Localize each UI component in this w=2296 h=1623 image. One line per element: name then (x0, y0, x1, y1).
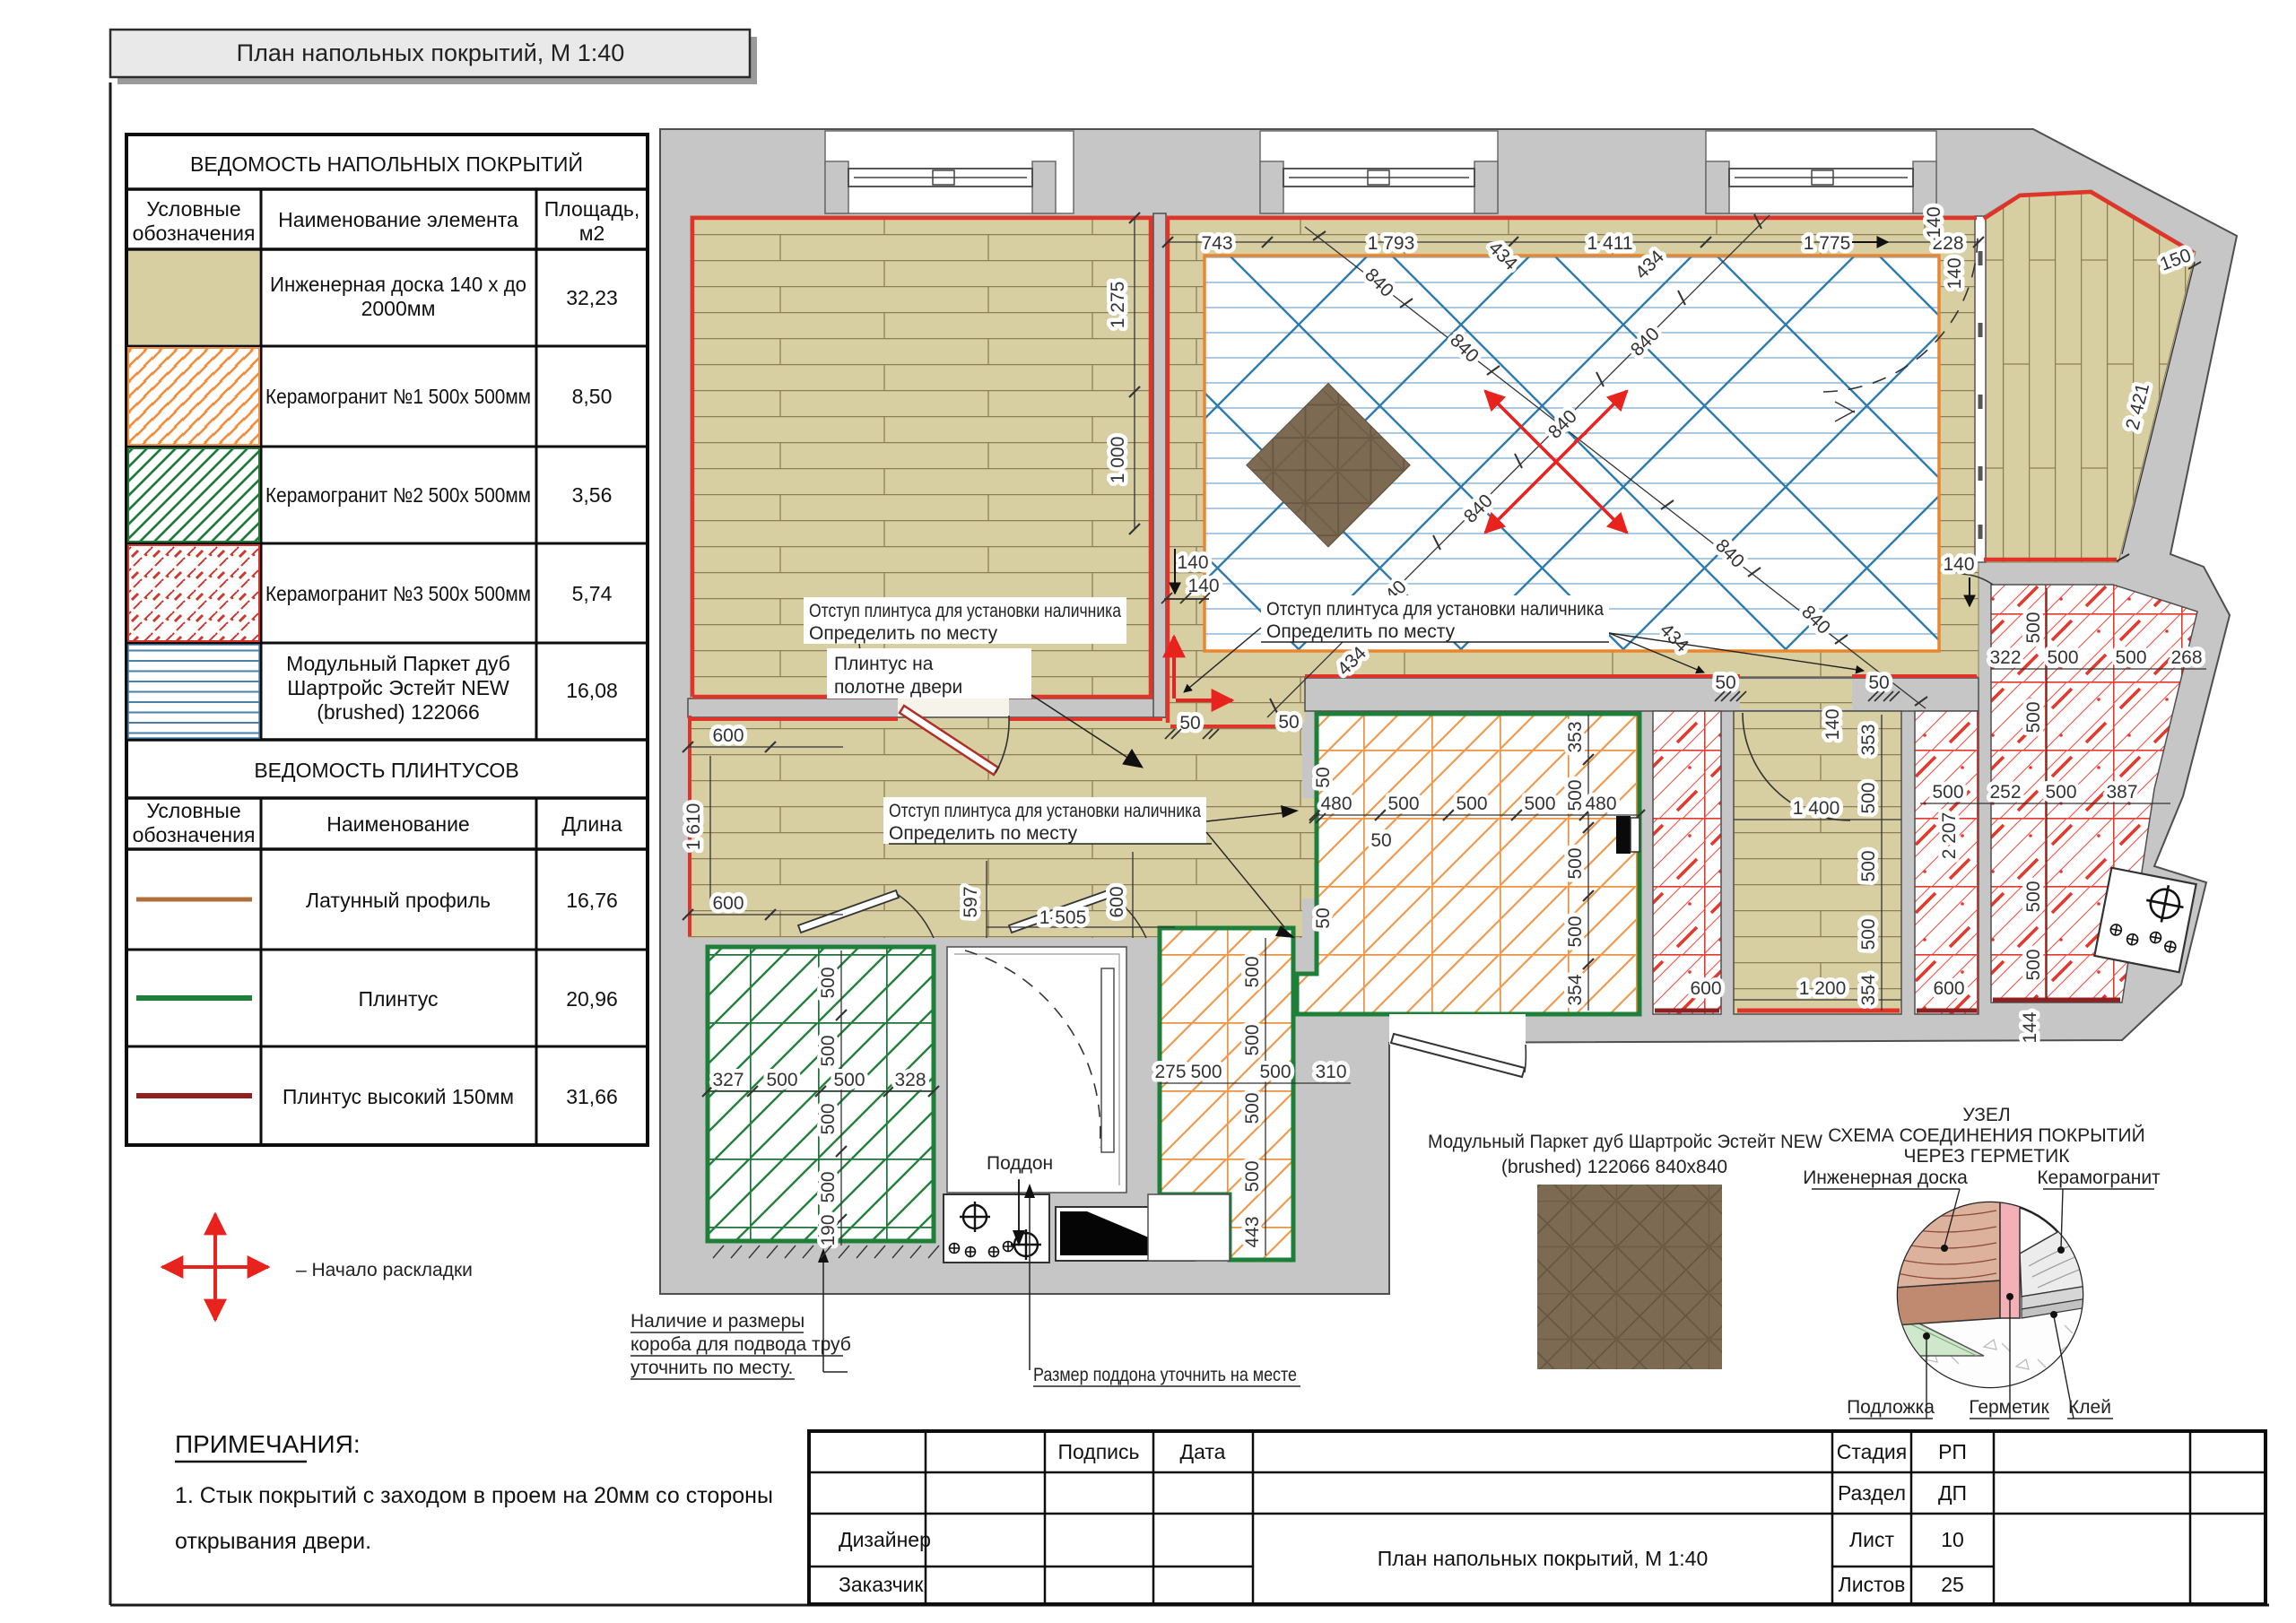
svg-text:Размер поддона уточнить на мес: Размер поддона уточнить на месте (1033, 1365, 1297, 1385)
svg-text:16,08: 16,08 (566, 679, 618, 702)
svg-text:354: 354 (1565, 974, 1586, 1005)
svg-text:500: 500 (833, 1070, 865, 1090)
svg-text:Определить по месту: Определить по месту (889, 823, 1078, 844)
svg-text:Наличие и размеры: Наличие и размеры (631, 1311, 804, 1332)
svg-text:600: 600 (1933, 978, 1964, 999)
svg-text:50: 50 (1715, 673, 1735, 693)
svg-text:Раздел: Раздел (1838, 1481, 1906, 1505)
svg-text:1 610: 1 610 (683, 803, 704, 851)
svg-text:Подпись: Подпись (1057, 1440, 1139, 1463)
svg-text:полотне двери: полотне двери (834, 677, 962, 698)
svg-text:Дата: Дата (1180, 1440, 1226, 1463)
svg-text:500: 500 (1242, 1024, 1263, 1055)
svg-text:УЗЕЛ: УЗЕЛ (1962, 1105, 2010, 1125)
svg-text:25: 25 (1941, 1573, 1964, 1596)
svg-text:3,56: 3,56 (572, 483, 613, 507)
svg-text:Плинтус: Плинтус (358, 987, 438, 1011)
svg-text:322: 322 (1989, 647, 2021, 668)
svg-text:500: 500 (818, 967, 839, 998)
svg-text:Шартройс Эстейт NEW: Шартройс Эстейт NEW (287, 676, 509, 699)
svg-text:обозначения: обозначения (133, 823, 256, 846)
svg-text:50: 50 (1313, 767, 1334, 787)
svg-text:252: 252 (1989, 782, 2021, 803)
svg-text:Модульный Паркет дуб: Модульный Паркет дуб (286, 652, 510, 675)
svg-text:443: 443 (1242, 1216, 1263, 1247)
svg-text:140: 140 (1943, 554, 1974, 575)
svg-text:500: 500 (1858, 850, 1879, 881)
svg-text:500: 500 (1565, 847, 1586, 879)
svg-text:уточнить по месту.: уточнить по месту. (631, 1358, 793, 1378)
svg-text:Отступ плинтуса для установки: Отступ плинтуса для установки наличника (889, 801, 1201, 821)
svg-text:Дизайнер: Дизайнер (839, 1528, 931, 1551)
svg-text:31,66: 31,66 (566, 1085, 618, 1108)
svg-text:500: 500 (1259, 1062, 1291, 1082)
svg-text:32,23: 32,23 (566, 286, 618, 309)
svg-text:1 275: 1 275 (1108, 282, 1128, 329)
svg-text:Отступ плинтуса для установки: Отступ плинтуса для установки наличника (1266, 599, 1604, 620)
svg-text:500: 500 (2045, 782, 2076, 803)
svg-text:140: 140 (1924, 206, 1944, 238)
svg-text:Определить по месту: Определить по месту (809, 623, 998, 644)
svg-text:1. Стык покрытий с заходом в п: 1. Стык покрытий с заходом в проем на 20… (175, 1483, 773, 1508)
svg-text:140: 140 (1177, 552, 1208, 573)
svg-text:Керамогранит №2 500х 500мм: Керамогранит №2 500х 500мм (265, 483, 531, 507)
svg-text:600: 600 (1107, 886, 1127, 917)
svg-text:ВЕДОМОСТЬ НАПОЛЬНЫХ ПОКРЫТИЙ: ВЕДОМОСТЬ НАПОЛЬНЫХ ПОКРЫТИЙ (190, 152, 583, 176)
svg-text:Листов: Листов (1839, 1573, 1906, 1596)
svg-text:Подложка: Подложка (1847, 1397, 1935, 1418)
svg-text:500: 500 (818, 1103, 839, 1134)
svg-text:1 793: 1 793 (1368, 233, 1415, 254)
svg-text:500: 500 (1456, 794, 1487, 814)
svg-text:План напольных покрытий, М 1:4: План напольных покрытий, М 1:40 (1378, 1547, 1709, 1570)
svg-text:1 000: 1 000 (1108, 437, 1128, 484)
svg-text:1 411: 1 411 (1587, 233, 1633, 254)
svg-text:600: 600 (712, 725, 744, 746)
svg-text:5,74: 5,74 (572, 582, 613, 605)
svg-text:открывания двери.: открывания двери. (175, 1529, 371, 1554)
svg-text:ДП: ДП (1938, 1481, 1967, 1505)
svg-text:140: 140 (1944, 257, 1965, 289)
svg-text:500: 500 (2023, 881, 2044, 912)
svg-text:Поддон: Поддон (987, 1153, 1053, 1174)
svg-text:500: 500 (1565, 779, 1586, 811)
svg-text:Клей: Клей (2068, 1397, 2111, 1418)
svg-text:50: 50 (1278, 712, 1299, 733)
svg-text:500: 500 (818, 1035, 839, 1066)
svg-text:190: 190 (818, 1214, 839, 1245)
svg-text:500: 500 (1932, 782, 1963, 803)
svg-text:Наименование элемента: Наименование элемента (278, 208, 518, 231)
svg-text:597: 597 (961, 886, 981, 917)
svg-text:Отступ плинтуса для установки: Отступ плинтуса для установки наличника (809, 601, 1121, 621)
svg-text:короба для подвода труб: короба для подвода труб (631, 1334, 851, 1355)
svg-text:Наименование: Наименование (326, 812, 469, 836)
svg-text:268: 268 (2170, 647, 2202, 668)
svg-text:500: 500 (1387, 794, 1419, 814)
svg-text:(brushed) 122066: (brushed) 122066 (317, 700, 480, 724)
svg-text:743: 743 (1201, 233, 1232, 254)
svg-text:500: 500 (818, 1171, 839, 1202)
svg-text:Латунный профиль: Латунный профиль (306, 889, 491, 912)
svg-text:480: 480 (1320, 794, 1352, 814)
svg-text:Керамогранит №1 500х 500мм: Керамогранит №1 500х 500мм (265, 385, 531, 408)
svg-text:СХЕМА СОЕДИНЕНИЯ ПОКРЫТИЙ: СХЕМА СОЕДИНЕНИЯ ПОКРЫТИЙ (1828, 1124, 2144, 1146)
svg-text:ПРИМЕЧАНИЯ:: ПРИМЕЧАНИЯ: (175, 1430, 361, 1458)
svg-text:500: 500 (2115, 647, 2146, 668)
svg-text:10: 10 (1941, 1528, 1964, 1551)
svg-text:м2: м2 (579, 221, 605, 245)
svg-text:50: 50 (1370, 830, 1391, 851)
svg-text:Определить по месту: Определить по месту (1266, 621, 1456, 642)
svg-text:310: 310 (1315, 1062, 1346, 1082)
svg-text:Керамогранит №3 500х 500мм: Керамогранит №3 500х 500мм (265, 582, 531, 605)
svg-text:387: 387 (2106, 782, 2137, 803)
svg-text:Инженерная доска: Инженерная доска (1803, 1167, 1968, 1188)
svg-text:327: 327 (712, 1070, 744, 1090)
svg-text:500: 500 (2023, 949, 2044, 980)
svg-text:2 207: 2 207 (1939, 812, 1960, 860)
svg-text:140: 140 (1187, 576, 1219, 596)
svg-text:500: 500 (2023, 612, 2044, 643)
svg-text:1 400: 1 400 (1793, 798, 1840, 819)
svg-text:500: 500 (766, 1070, 797, 1090)
svg-text:140: 140 (1822, 708, 1843, 740)
svg-text:500: 500 (1242, 1092, 1263, 1124)
svg-text:600: 600 (712, 893, 744, 914)
svg-text:20,96: 20,96 (566, 987, 618, 1011)
svg-text:353: 353 (1858, 724, 1879, 755)
svg-text:480: 480 (1585, 794, 1616, 814)
svg-text:8,50: 8,50 (572, 385, 613, 408)
svg-text:РП: РП (1938, 1440, 1967, 1463)
svg-text:500: 500 (1524, 794, 1555, 814)
svg-text:16,76: 16,76 (566, 889, 618, 912)
svg-text:Условные: Условные (146, 197, 240, 221)
svg-text:Заказчик: Заказчик (839, 1573, 924, 1596)
svg-text:Плинтус на: Плинтус на (834, 654, 934, 674)
svg-text:Площадь,: Площадь, (544, 197, 640, 221)
svg-text:ЧЕРЕЗ ГЕРМЕТИК: ЧЕРЕЗ ГЕРМЕТИК (1904, 1146, 2071, 1167)
svg-text:50: 50 (1179, 713, 1200, 733)
svg-text:2000мм: 2000мм (361, 297, 436, 320)
svg-text:500: 500 (1242, 956, 1263, 987)
svg-text:ВЕДОМОСТЬ ПЛИНТУСОВ: ВЕДОМОСТЬ ПЛИНТУСОВ (254, 759, 518, 782)
svg-text:Модульный Паркет дуб Шартройс: Модульный Паркет дуб Шартройс Эстейт NEW (1428, 1132, 1822, 1152)
svg-text:500: 500 (2023, 701, 2044, 733)
svg-text:500: 500 (1190, 1062, 1222, 1082)
svg-text:50: 50 (1313, 907, 1334, 928)
svg-text:1 775: 1 775 (1804, 233, 1851, 254)
svg-text:353: 353 (1565, 721, 1586, 752)
svg-text:(brushed) 122066 840x840: (brushed) 122066 840x840 (1501, 1157, 1727, 1177)
svg-text:Плинтус высокий 150мм: Плинтус высокий 150мм (283, 1085, 514, 1108)
svg-text:328: 328 (894, 1070, 926, 1090)
svg-text:500: 500 (1858, 918, 1879, 950)
svg-text:1 505: 1 505 (1039, 907, 1087, 928)
svg-text:275: 275 (1154, 1062, 1186, 1082)
svg-text:1 200: 1 200 (1799, 978, 1847, 999)
svg-text:Керамогранит: Керамогранит (2037, 1167, 2161, 1188)
svg-text:500: 500 (1858, 782, 1879, 813)
svg-text:Длина: Длина (561, 812, 622, 836)
svg-text:500: 500 (1565, 916, 1586, 947)
svg-text:Условные: Условные (146, 799, 240, 822)
svg-text:Инженерная доска 140 х до: Инженерная доска 140 х до (270, 273, 526, 296)
svg-text:500: 500 (2047, 647, 2078, 668)
svg-text:50: 50 (1868, 673, 1889, 693)
svg-text:354: 354 (1858, 974, 1879, 1005)
svg-text:500: 500 (1242, 1160, 1263, 1192)
svg-text:600: 600 (1690, 978, 1721, 999)
svg-text:обозначения: обозначения (133, 221, 256, 245)
svg-text:144: 144 (2020, 1011, 2040, 1043)
svg-text:– Начало раскладки: – Начало раскладки (296, 1260, 473, 1280)
svg-text:Лист: Лист (1849, 1528, 1894, 1551)
svg-text:План напольных покрытий, М 1:4: План напольных покрытий, М 1:40 (237, 39, 625, 66)
svg-text:Стадия: Стадия (1837, 1440, 1907, 1463)
